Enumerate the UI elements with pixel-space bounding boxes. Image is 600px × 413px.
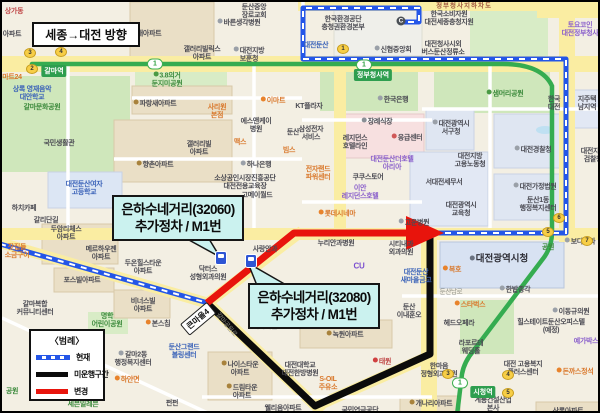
callout-stop-name: 은하수네거리(32080) [257, 289, 370, 306]
callout-stop-32080: 은하수네거리(32080) 추가정차 / M1번 [248, 283, 380, 329]
station-exit-number: 6 [553, 213, 565, 223]
station-exit-number: 4 [502, 370, 514, 380]
station-exit-number: 3 [24, 48, 36, 58]
station-exit-number: 2 [26, 64, 38, 74]
legend-label: 현재 [76, 352, 90, 363]
subway-line-number-pill: 1 [147, 59, 163, 70]
bus-stop-icon [215, 251, 227, 265]
turnaround-c-icon: C [397, 17, 406, 26]
station-exit-number: 7 [581, 236, 593, 246]
legend-label: 미운행구간 [74, 369, 108, 380]
station-exit-number: 5 [542, 227, 554, 237]
station-exit-number: 1 [337, 44, 349, 54]
legend-item: 변경 [36, 383, 98, 400]
station-exit-number: 3 [442, 369, 454, 379]
route-change-map: 둔산중앙 장로교회바른생각병원상가동아파트지개아파트갤러리빌릭스 아파트대전지방… [0, 0, 600, 413]
subway-station-badge: 정부청사역 [354, 69, 392, 81]
legend-box: 〈범례〉 현재미운행구간변경 [29, 329, 105, 401]
legend-swatch-removed [36, 372, 68, 377]
bus-window [218, 254, 224, 258]
legend-item: 미운행구간 [36, 366, 98, 383]
callout-stop-note: 추가정차 / M1번 [135, 218, 221, 235]
subway-station-badge: 갈마역 [41, 65, 66, 77]
legend-label: 변경 [74, 386, 88, 397]
callout-stop-32060: 은하수네거리(32060) 추가정차 / M1번 [112, 195, 244, 241]
bus-window [248, 257, 254, 261]
station-exit-number: 4 [55, 47, 67, 57]
callout-stop-note: 추가정차 / M1번 [271, 306, 357, 323]
legend-item: 현재 [36, 349, 98, 366]
station-exit-number: 5 [502, 388, 514, 398]
legend-title: 〈범례〉 [36, 334, 98, 347]
direction-title-box: 세종→대전 방향 [32, 22, 140, 47]
legend-swatch-current [36, 355, 70, 360]
subway-line-number-pill: 1 [452, 378, 468, 389]
legend-swatch-changed [36, 389, 68, 394]
callout-stop-name: 은하수네거리(32060) [121, 201, 234, 218]
bus-stop-icon [245, 254, 257, 268]
legend-rows: 현재미운행구간변경 [36, 349, 98, 400]
subway-station-badge: 시청역 [470, 386, 495, 398]
